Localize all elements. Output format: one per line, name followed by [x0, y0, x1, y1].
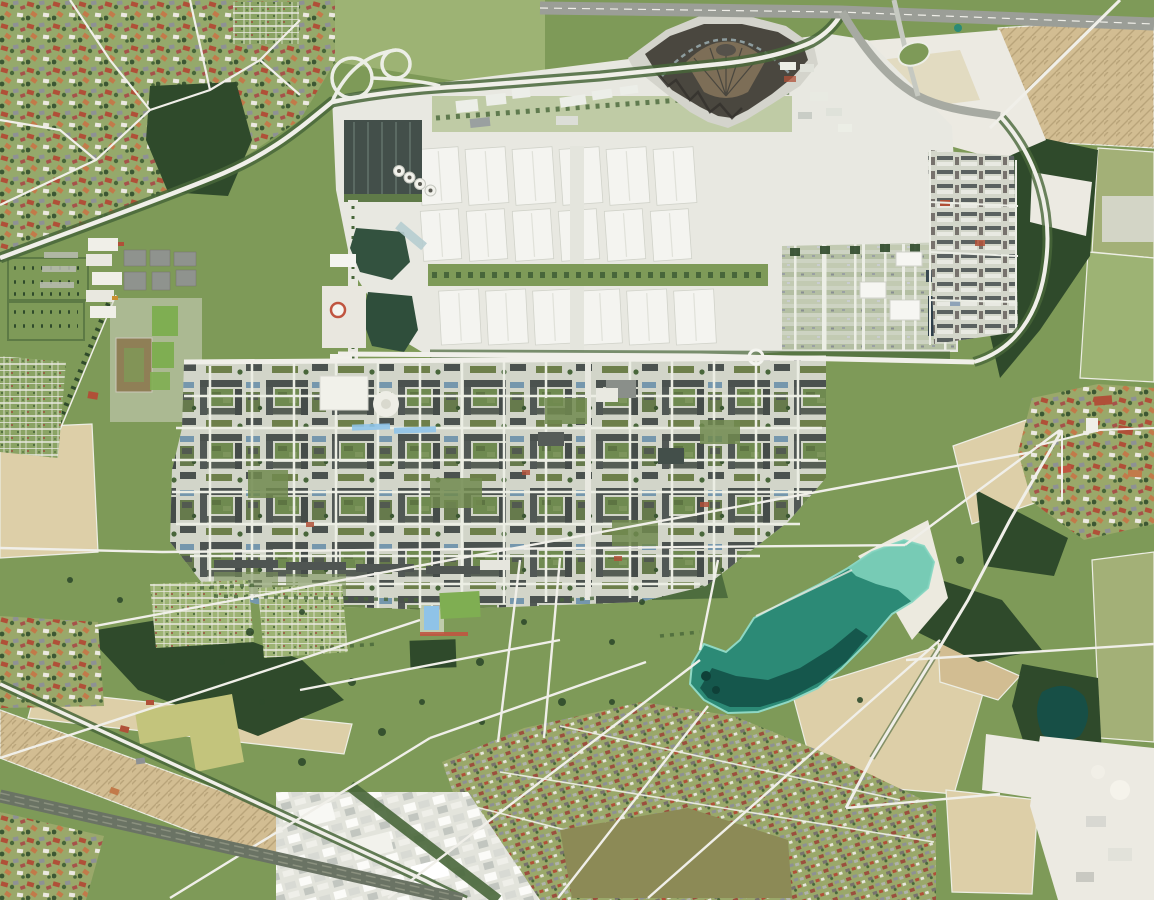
circular-plaza-center: [381, 399, 391, 409]
farm-building-white: [1086, 418, 1098, 432]
paved-yard-east: [1102, 196, 1154, 242]
exhibition-hall-3-3: [533, 289, 576, 345]
red-roof-shed: [784, 76, 796, 82]
dark-roof-building: [658, 448, 684, 464]
works-building: [1108, 848, 1132, 861]
tree-clump: [259, 699, 265, 705]
exhibition-hall-2-3: [512, 209, 553, 262]
tree-clump: [246, 628, 254, 636]
tree-clump: [117, 597, 123, 603]
tree-clump: [639, 599, 645, 605]
tree-clump: [609, 639, 615, 645]
exhibition-hall-3-1: [439, 289, 482, 345]
aerial-photo: [0, 0, 1154, 900]
fan-crown: [716, 44, 736, 56]
aerial-photo-canvas: [0, 0, 1154, 900]
gravel-mound: [1091, 765, 1105, 779]
tree-clump: [419, 699, 425, 705]
parking-strip: [40, 282, 74, 288]
field-tan-south: [946, 790, 1038, 894]
tank-center: [429, 189, 433, 193]
swimming-pool: [424, 606, 439, 630]
track-infield: [124, 348, 144, 382]
tree-clump: [299, 609, 305, 615]
central-spine-walkway: [570, 146, 584, 356]
allotment-grid-north: [233, 2, 299, 44]
round-building: [331, 303, 345, 317]
farm-roof: [1128, 470, 1142, 478]
sports-pitch: [150, 372, 170, 390]
sports-pitch: [152, 306, 178, 336]
exhibition-hall-2-6: [650, 209, 691, 262]
tree-clump: [219, 659, 225, 665]
exhibition-hall-1-1: [418, 147, 462, 206]
exhibition-hall-3-4: [580, 289, 623, 345]
plaza: [596, 388, 618, 402]
tank-center: [408, 176, 412, 180]
lake-dark-spot: [712, 686, 720, 694]
farm-roof: [1094, 395, 1113, 406]
red-roof-accent: [118, 242, 124, 246]
tree-clump: [558, 698, 566, 706]
lake-dark-spot: [701, 671, 711, 681]
sports-pitch: [152, 342, 174, 368]
red-roof: [975, 240, 985, 246]
works-building: [1076, 872, 1094, 882]
tree-clump: [956, 556, 964, 564]
exhibition-hall-1-3: [512, 147, 556, 206]
tank-center: [418, 182, 422, 186]
tree-clump: [378, 728, 386, 736]
orange-roof-accent: [112, 296, 118, 300]
works-building: [1086, 816, 1106, 827]
white-tent-hall: [860, 282, 886, 298]
white-tent-hall: [896, 252, 922, 266]
parking-strip: [42, 266, 76, 272]
tree-clump: [476, 658, 484, 666]
gravel-pond-small: [954, 24, 962, 32]
shopping-mall-roof: [320, 376, 368, 410]
exhibition-hall-3-6: [674, 289, 717, 345]
gravel-mound: [1110, 780, 1130, 800]
exhibition-hall-3-5: [627, 289, 670, 345]
tree-clump: [521, 619, 527, 625]
parking-strip: [44, 252, 78, 258]
exhibition-hall-2-5: [604, 209, 645, 262]
allotment-colony-grid: [0, 356, 66, 458]
exhibition-hall-2-1: [420, 209, 461, 262]
sports-pitch-park: [439, 591, 480, 619]
exhibition-hall-1-6: [653, 147, 697, 206]
northeast-industry-rows: [928, 150, 1018, 345]
congress-building: [330, 254, 356, 267]
industry-rows-texture: [928, 150, 1018, 344]
white-tent-hall: [890, 300, 920, 320]
exhibition-hall-3-2: [486, 289, 529, 345]
tree-clump: [67, 577, 73, 583]
tree-clump: [609, 699, 615, 705]
exhibition-hall-1-2: [465, 147, 509, 206]
green-median: [428, 264, 768, 286]
tree-clump: [298, 758, 306, 766]
dark-roof-building: [538, 432, 564, 446]
exhibition-hall-1-5: [606, 147, 650, 206]
construction-site: [322, 286, 366, 348]
parking-lane: [822, 244, 825, 350]
quarry-pond: [1037, 686, 1088, 742]
tank-center: [397, 169, 401, 173]
field-meadow-east: [1080, 252, 1154, 382]
red-running-strip: [420, 632, 468, 636]
exhibition-hall-2-2: [466, 209, 507, 262]
tree-clump: [857, 697, 863, 703]
plaza: [480, 560, 510, 570]
glass-hall-complex: [344, 120, 422, 202]
